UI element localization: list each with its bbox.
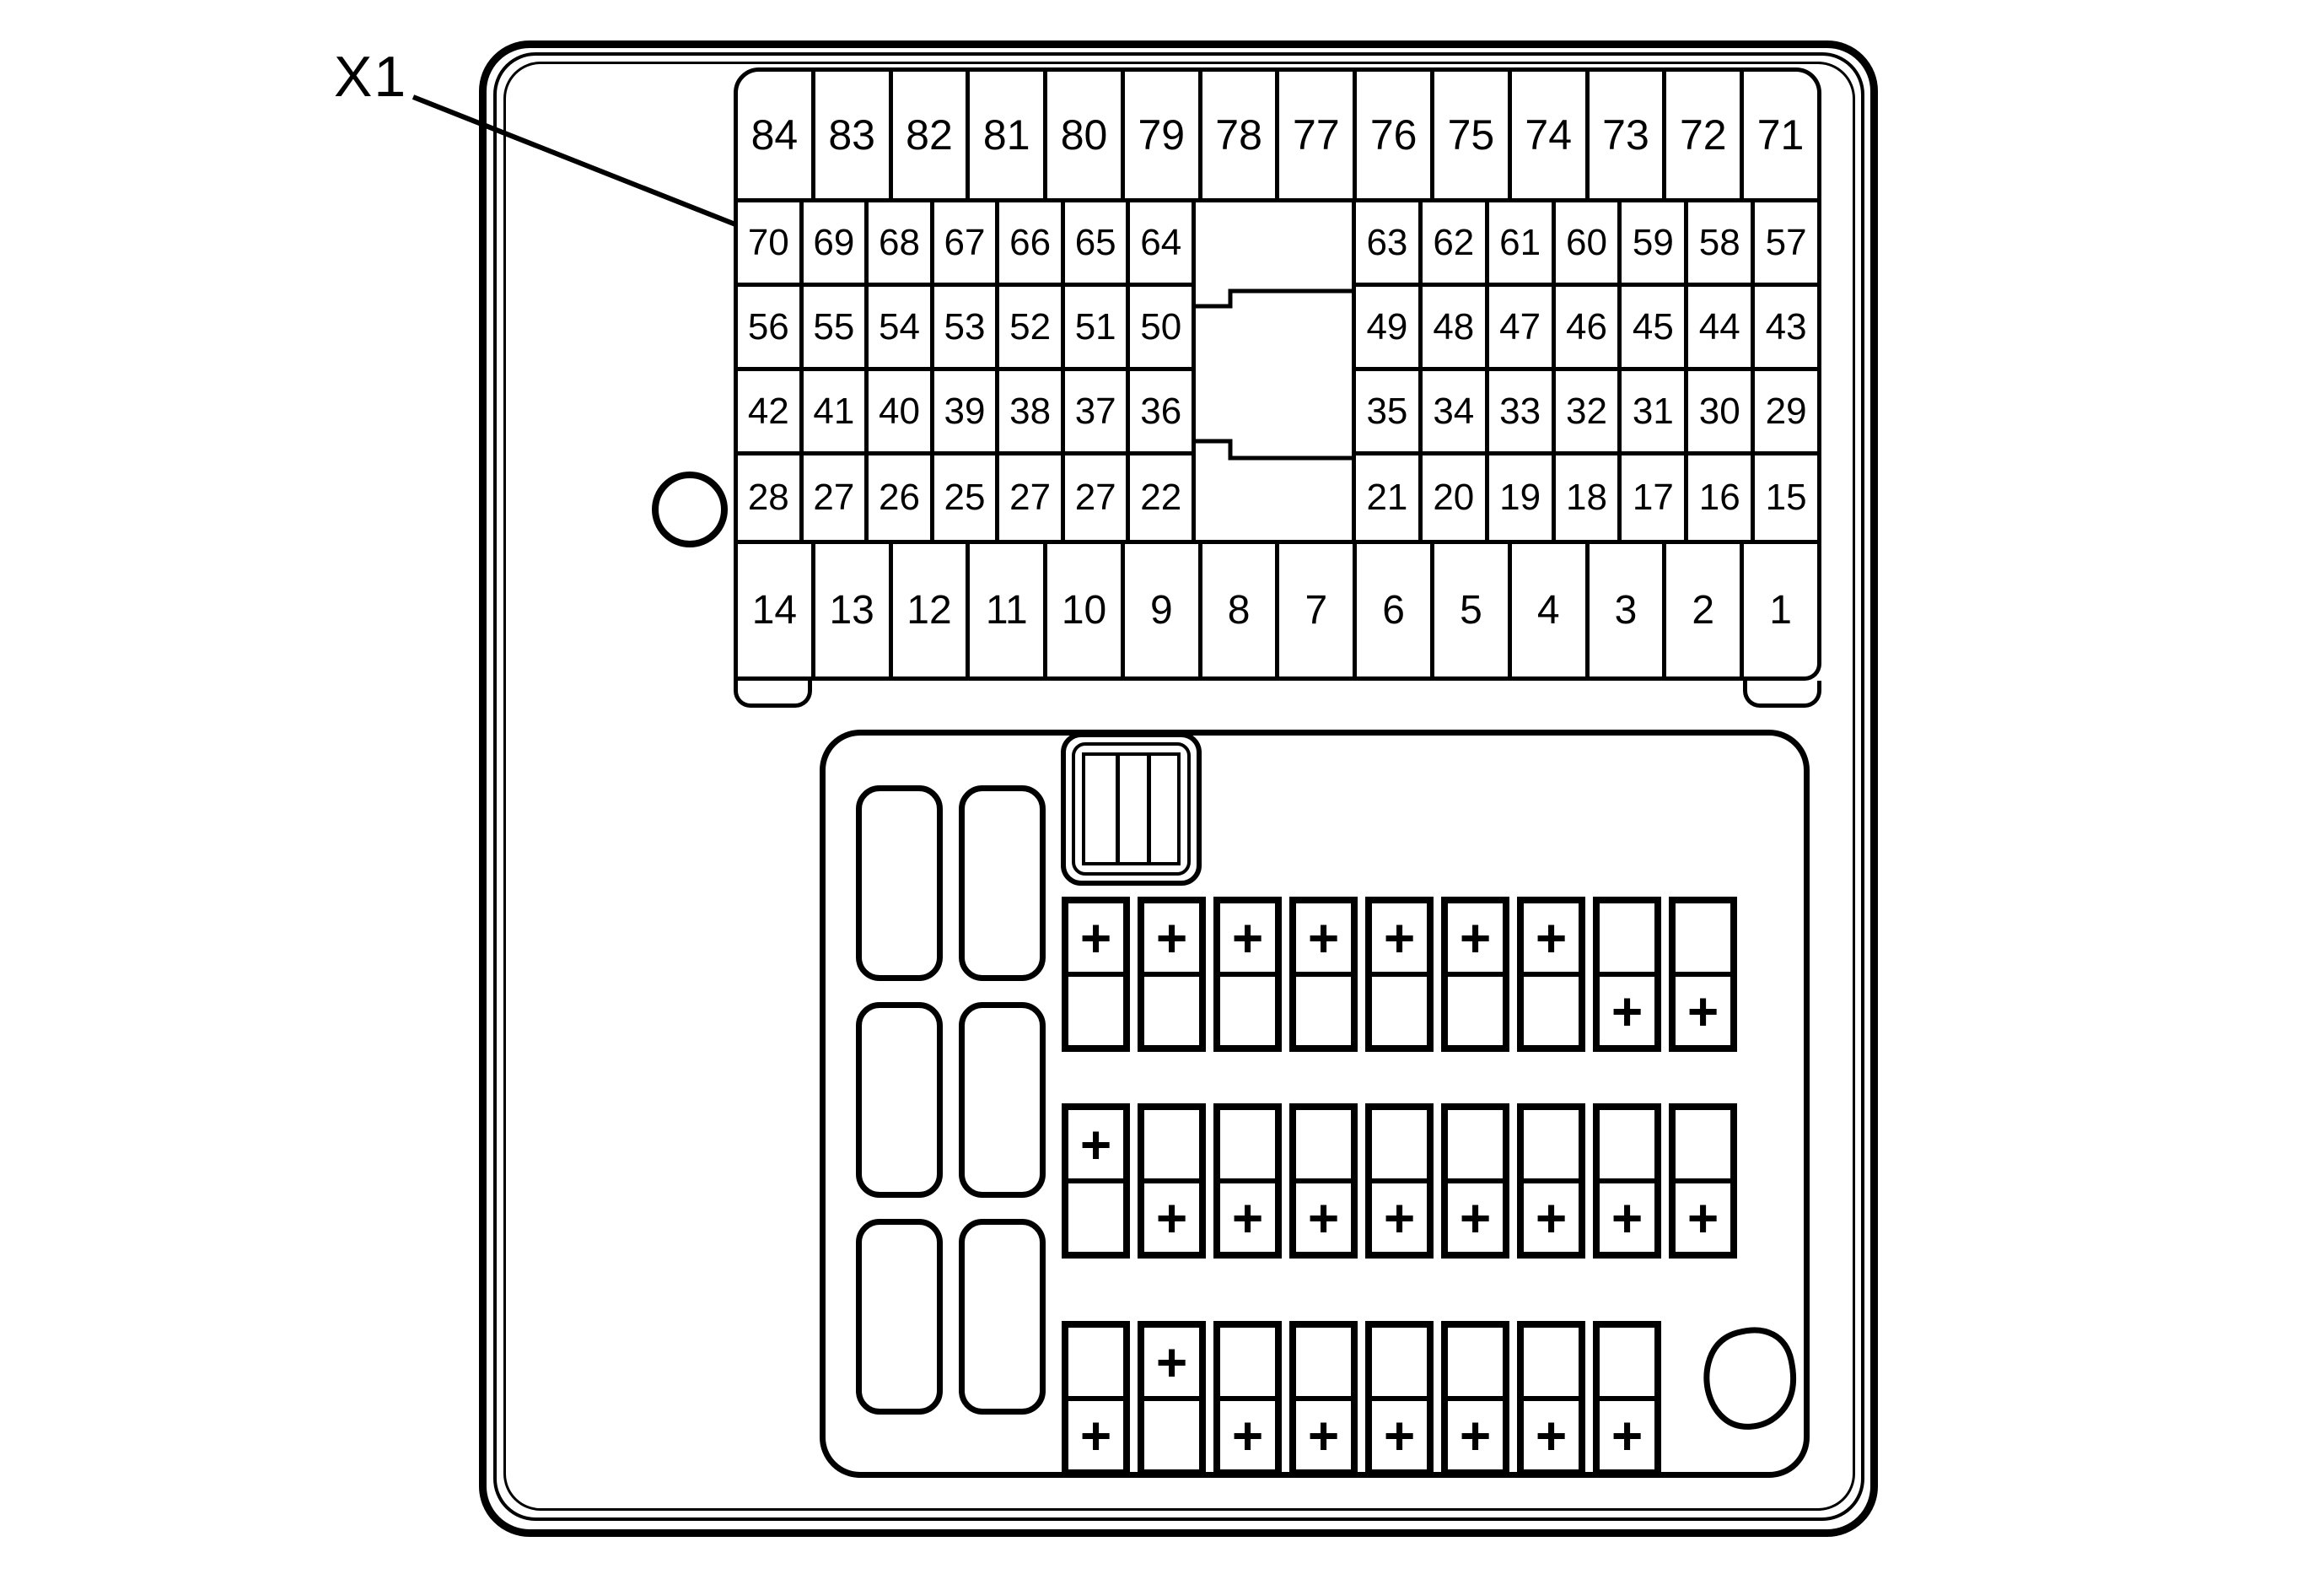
pin-cell: 49 bbox=[1352, 287, 1423, 371]
pin-cell: 63 bbox=[1352, 202, 1423, 287]
fuse-terminal-bottom bbox=[1068, 977, 1123, 1045]
fuse-terminal-bottom bbox=[1372, 977, 1427, 1045]
pin-cell: 26 bbox=[869, 455, 934, 540]
fuse-terminal-top: + bbox=[1220, 903, 1275, 977]
pin-cell: 39 bbox=[934, 371, 1000, 455]
fuse-slot: + bbox=[1062, 1321, 1130, 1476]
fuse-terminal-top: + bbox=[1068, 1110, 1123, 1183]
pin-row-14-1: 1413121110987654321 bbox=[734, 540, 1821, 681]
fuse-terminal-top bbox=[1524, 1110, 1579, 1183]
pin-cell: 81 bbox=[970, 67, 1047, 202]
fuse-slot: + bbox=[1517, 1103, 1585, 1259]
connector-x1-pin-grid: 8483828180797877767574737271 70696867666… bbox=[734, 67, 1821, 681]
fuse-terminal-top bbox=[1068, 1328, 1123, 1401]
pin-cell: 34 bbox=[1423, 371, 1489, 455]
relay-slot bbox=[856, 785, 943, 981]
pin-row-84-71: 8483828180797877767574737271 bbox=[734, 67, 1821, 202]
pin-cell: 20 bbox=[1423, 455, 1489, 540]
pin-cell: 17 bbox=[1622, 455, 1688, 540]
pin-cell: 70 bbox=[734, 202, 804, 287]
pin-cell: 50 bbox=[1130, 287, 1196, 371]
pin-cell: 28 bbox=[734, 455, 804, 540]
pin-cell: 77 bbox=[1279, 67, 1357, 202]
pin-cell: 75 bbox=[1434, 67, 1512, 202]
pin-cell: 10 bbox=[1047, 540, 1125, 681]
fuse-terminal-top bbox=[1372, 1110, 1427, 1183]
pin-cell: 80 bbox=[1047, 67, 1125, 202]
pin-cell: 71 bbox=[1744, 67, 1821, 202]
pin-cell: 40 bbox=[869, 371, 934, 455]
fuse-terminal-bottom bbox=[1144, 1401, 1199, 1469]
pin-cell: 5 bbox=[1434, 540, 1512, 681]
fuse-terminal-top bbox=[1296, 1110, 1351, 1183]
pin-cell: 2 bbox=[1666, 540, 1744, 681]
pin-cell: 68 bbox=[869, 202, 934, 287]
pin-cell: 65 bbox=[1065, 202, 1131, 287]
pin-cell: 42 bbox=[734, 371, 804, 455]
pin-cell: 51 bbox=[1065, 287, 1131, 371]
pin-cell: 38 bbox=[999, 371, 1065, 455]
relay-socket-inner bbox=[1082, 752, 1181, 865]
fuse-terminal-bottom: + bbox=[1144, 1183, 1199, 1252]
pin-cell: 84 bbox=[734, 67, 815, 202]
fuse-slot: + bbox=[1517, 1321, 1585, 1476]
pin-cell: 22 bbox=[1130, 455, 1196, 540]
fuse-terminal-top bbox=[1600, 1328, 1654, 1401]
pin-cell: 13 bbox=[815, 540, 893, 681]
fuse-terminal-top: + bbox=[1068, 903, 1123, 977]
fuse-terminal-top bbox=[1220, 1110, 1275, 1183]
pin-cell: 12 bbox=[893, 540, 971, 681]
fuse-terminal-bottom: + bbox=[1068, 1401, 1123, 1469]
pin-row-42-29: 42414039383736 35343332313029 bbox=[734, 371, 1821, 455]
pin-cell: 66 bbox=[999, 202, 1065, 287]
fuse-terminal-bottom: + bbox=[1524, 1183, 1579, 1252]
fuse-terminal-bottom: + bbox=[1524, 1401, 1579, 1469]
pin-cell: 27 bbox=[999, 455, 1065, 540]
connector-keyway-gap bbox=[1196, 287, 1352, 371]
pin-cell: 14 bbox=[734, 540, 815, 681]
fuse-terminal-bottom: + bbox=[1296, 1183, 1351, 1252]
pin-cell: 61 bbox=[1489, 202, 1556, 287]
pin-cell: 46 bbox=[1556, 287, 1622, 371]
fuse-terminal-bottom: + bbox=[1220, 1183, 1275, 1252]
pin-cell: 32 bbox=[1556, 371, 1622, 455]
fuse-slot: + bbox=[1213, 1321, 1282, 1476]
relay-socket-divider bbox=[1116, 756, 1120, 862]
pin-group-70-64: 70696867666564 bbox=[734, 202, 1196, 287]
fuse-slot: + bbox=[1062, 897, 1130, 1052]
fuse-terminal-top bbox=[1296, 1328, 1351, 1401]
fuse-terminal-top: + bbox=[1144, 1328, 1199, 1401]
pin-cell: 27 bbox=[804, 455, 869, 540]
connector-keyway-gap bbox=[1196, 371, 1352, 455]
fuse-slot: + bbox=[1289, 1321, 1358, 1476]
relay-slot bbox=[856, 1219, 943, 1415]
pin-group-42-36: 42414039383736 bbox=[734, 371, 1196, 455]
relay-slot bbox=[959, 1219, 1046, 1415]
fuse-terminal-top bbox=[1600, 1110, 1654, 1183]
pin-group-63-57: 63626160595857 bbox=[1352, 202, 1821, 287]
fuse-terminal-top bbox=[1448, 1328, 1503, 1401]
fuse-terminal-bottom: + bbox=[1600, 1401, 1654, 1469]
pin-row-56-43: 56555453525150 49484746454443 bbox=[734, 287, 1821, 371]
pin-cell: 11 bbox=[970, 540, 1047, 681]
fuse-terminal-top: + bbox=[1296, 903, 1351, 977]
fuse-terminal-top bbox=[1220, 1328, 1275, 1401]
fuse-terminal-top bbox=[1372, 1328, 1427, 1401]
fuse-terminal-bottom: + bbox=[1676, 1183, 1730, 1252]
fuse-terminal-bottom: + bbox=[1372, 1401, 1427, 1469]
pin-cell: 76 bbox=[1357, 67, 1434, 202]
fuse-terminal-bottom: + bbox=[1220, 1401, 1275, 1469]
pin-cell: 48 bbox=[1423, 287, 1489, 371]
fuse-terminal-bottom bbox=[1068, 1183, 1123, 1252]
pin-cell: 54 bbox=[869, 287, 934, 371]
pin-cell: 73 bbox=[1590, 67, 1667, 202]
pin-cell: 33 bbox=[1489, 371, 1556, 455]
fuse-terminal-bottom bbox=[1524, 977, 1579, 1045]
pin-cell: 69 bbox=[804, 202, 869, 287]
pin-cell: 57 bbox=[1755, 202, 1821, 287]
fuse-terminal-top bbox=[1448, 1110, 1503, 1183]
fuse-slot: + bbox=[1213, 1103, 1282, 1259]
connector-label: X1 bbox=[334, 44, 407, 110]
fuse-terminal-top: + bbox=[1372, 903, 1427, 977]
pin-cell: 78 bbox=[1202, 67, 1280, 202]
pin-group-56-50: 56555453525150 bbox=[734, 287, 1196, 371]
fuse-terminal-bottom: + bbox=[1372, 1183, 1427, 1252]
pin-cell: 45 bbox=[1622, 287, 1688, 371]
fuse-slot: + bbox=[1365, 1321, 1434, 1476]
fuse-slot: + bbox=[1213, 897, 1282, 1052]
connector-keyway-gap bbox=[1196, 455, 1352, 540]
pin-cell: 60 bbox=[1556, 202, 1622, 287]
pin-cell: 16 bbox=[1688, 455, 1755, 540]
pin-cell: 79 bbox=[1125, 67, 1202, 202]
fuse-terminal-bottom: + bbox=[1600, 1183, 1654, 1252]
pin-cell: 55 bbox=[804, 287, 869, 371]
pin-cell: 37 bbox=[1065, 371, 1131, 455]
relay-socket-divider bbox=[1147, 756, 1151, 862]
fuse-terminal-bottom: + bbox=[1448, 1401, 1503, 1469]
fuse-slot: + bbox=[1669, 1103, 1737, 1259]
pin-cell: 6 bbox=[1357, 540, 1434, 681]
pin-cell: 64 bbox=[1130, 202, 1196, 287]
fuse-slot: + bbox=[1441, 897, 1509, 1052]
fuse-slot: + bbox=[1138, 897, 1206, 1052]
pin-cell: 44 bbox=[1688, 287, 1755, 371]
fuse-row-bottom: + + + + + + bbox=[1062, 1321, 1661, 1476]
pin-row-70-57: 70696867666564 63626160595857 bbox=[734, 202, 1821, 287]
pin-cell: 53 bbox=[934, 287, 1000, 371]
pin-group-35-29: 35343332313029 bbox=[1352, 371, 1821, 455]
grid-mount-tab-right bbox=[1743, 681, 1821, 708]
pin-cell: 74 bbox=[1512, 67, 1590, 202]
fuse-row-top: + + + + + + bbox=[1062, 897, 1737, 1052]
fuse-terminal-bottom bbox=[1144, 977, 1199, 1045]
pin-cell: 59 bbox=[1622, 202, 1688, 287]
pin-cell: 83 bbox=[815, 67, 893, 202]
fuse-slot: + bbox=[1441, 1321, 1509, 1476]
fuse-slot: + bbox=[1138, 1103, 1206, 1259]
fuse-terminal-top bbox=[1144, 1110, 1199, 1183]
fuse-row-middle: + + + + + + bbox=[1062, 1103, 1737, 1259]
fuse-terminal-top: + bbox=[1448, 903, 1503, 977]
fuse-slot: + bbox=[1289, 1103, 1358, 1259]
fuse-slot: + bbox=[1365, 1103, 1434, 1259]
fuse-slot: + bbox=[1289, 897, 1358, 1052]
pin-cell: 56 bbox=[734, 287, 804, 371]
fuse-terminal-top bbox=[1524, 1328, 1579, 1401]
fuse-slot: + bbox=[1517, 897, 1585, 1052]
fuse-terminal-bottom: + bbox=[1600, 977, 1654, 1045]
pin-group-21-15: 21201918171615 bbox=[1352, 455, 1821, 540]
grid-mount-tab-left bbox=[734, 681, 812, 708]
pin-cell: 67 bbox=[934, 202, 1000, 287]
fuse-box-diagram: X1 8483828180797877767574737271 70696867… bbox=[0, 0, 2324, 1574]
fuse-terminal-bottom bbox=[1448, 977, 1503, 1045]
connector-keyway-gap bbox=[1196, 202, 1352, 287]
fuse-slot: + bbox=[1593, 897, 1661, 1052]
pin-cell: 19 bbox=[1489, 455, 1556, 540]
pin-cell: 35 bbox=[1352, 371, 1423, 455]
relay-slot bbox=[959, 785, 1046, 981]
pin-cell: 43 bbox=[1755, 287, 1821, 371]
fuse-terminal-top: + bbox=[1144, 903, 1199, 977]
fuse-terminal-bottom bbox=[1220, 977, 1275, 1045]
fuse-slot: + bbox=[1669, 897, 1737, 1052]
pin-cell: 3 bbox=[1590, 540, 1667, 681]
pin-group-49-43: 49484746454443 bbox=[1352, 287, 1821, 371]
fuse-terminal-bottom: + bbox=[1676, 977, 1730, 1045]
fuse-terminal-top bbox=[1676, 903, 1730, 977]
pin-cell: 27 bbox=[1065, 455, 1131, 540]
pin-cell: 52 bbox=[999, 287, 1065, 371]
fuse-terminal-top bbox=[1600, 903, 1654, 977]
pin-cell: 25 bbox=[934, 455, 1000, 540]
pin-cell: 7 bbox=[1279, 540, 1357, 681]
pin-cell: 72 bbox=[1666, 67, 1744, 202]
fuse-slot: + bbox=[1593, 1103, 1661, 1259]
fuse-terminal-bottom: + bbox=[1448, 1183, 1503, 1252]
fuse-terminal-bottom: + bbox=[1296, 1401, 1351, 1469]
fuse-terminal-top: + bbox=[1524, 903, 1579, 977]
fuse-slot: + bbox=[1062, 1103, 1130, 1259]
fuse-terminal-bottom bbox=[1296, 977, 1351, 1045]
pin-group-28-22: 28272625272722 bbox=[734, 455, 1196, 540]
pin-cell: 62 bbox=[1423, 202, 1489, 287]
pin-cell: 4 bbox=[1512, 540, 1590, 681]
pin-cell: 18 bbox=[1556, 455, 1622, 540]
fuse-terminal-top bbox=[1676, 1110, 1730, 1183]
pin-cell: 21 bbox=[1352, 455, 1423, 540]
mounting-hole bbox=[652, 472, 728, 547]
pin-cell: 41 bbox=[804, 371, 869, 455]
pin-cell: 36 bbox=[1130, 371, 1196, 455]
pin-cell: 47 bbox=[1489, 287, 1556, 371]
pin-cell: 82 bbox=[893, 67, 971, 202]
pin-cell: 8 bbox=[1202, 540, 1280, 681]
pin-cell: 31 bbox=[1622, 371, 1688, 455]
pin-cell: 1 bbox=[1744, 540, 1821, 681]
pin-cell: 9 bbox=[1125, 540, 1202, 681]
fuse-slot: + bbox=[1365, 897, 1434, 1052]
fuse-slot: + bbox=[1138, 1321, 1206, 1476]
pin-cell: 15 bbox=[1755, 455, 1821, 540]
fuse-slot: + bbox=[1441, 1103, 1509, 1259]
pin-cell: 30 bbox=[1688, 371, 1755, 455]
relay-slot bbox=[856, 1002, 943, 1198]
pin-cell: 29 bbox=[1755, 371, 1821, 455]
pin-cell: 58 bbox=[1688, 202, 1755, 287]
relay-slot bbox=[959, 1002, 1046, 1198]
fuse-slot: + bbox=[1593, 1321, 1661, 1476]
pin-row-28-15: 28272625272722 21201918171615 bbox=[734, 455, 1821, 540]
